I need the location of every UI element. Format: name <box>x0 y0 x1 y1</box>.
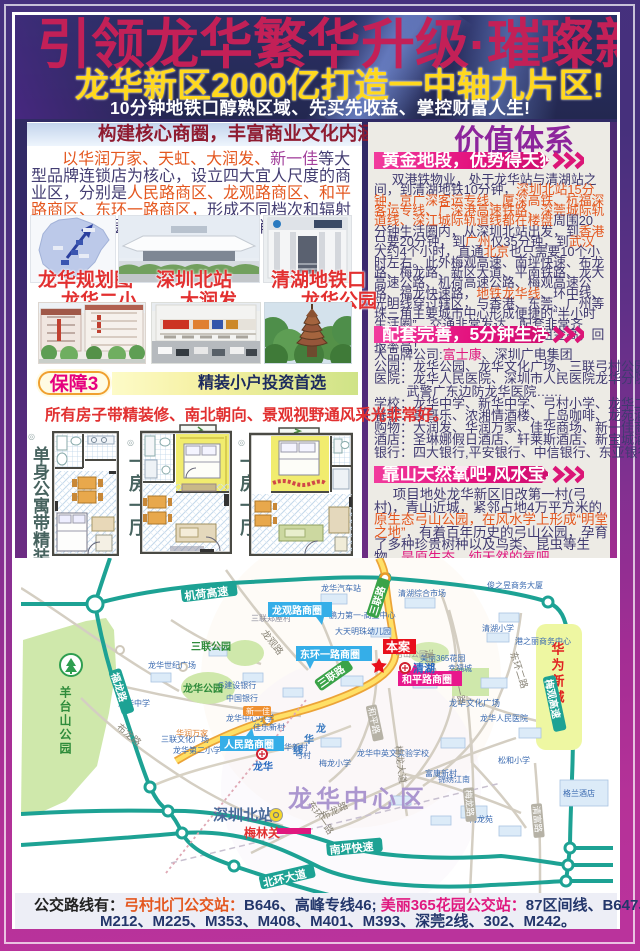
svg-text:松和小学: 松和小学 <box>498 755 530 765</box>
svg-text:梅林关: 梅林关 <box>244 825 280 840</box>
svg-text:人民路商圈: 人民路商圈 <box>224 738 274 751</box>
svg-text:龙观路商圈: 龙观路商圈 <box>271 604 322 617</box>
svg-text:龙华第二小学: 龙华第二小学 <box>173 745 221 755</box>
svg-text:龙华世纪广场: 龙华世纪广场 <box>148 660 196 670</box>
svg-text:东环二路: 东环二路 <box>507 650 530 690</box>
svg-text:线: 线 <box>293 744 303 757</box>
svg-text:龙华公园: 龙华公园 <box>182 682 223 695</box>
svg-text:龙: 龙 <box>315 722 326 735</box>
svg-text:羊台山公园: 羊台山公园 <box>58 685 72 756</box>
svg-text:新一佳: 新一佳 <box>246 706 270 716</box>
svg-text:华: 华 <box>304 733 314 746</box>
svg-text:东环一路商圈: 东环一路商圈 <box>300 648 360 661</box>
svg-text:中国银行: 中国银行 <box>226 693 258 703</box>
svg-text:本案: 本案 <box>386 639 411 654</box>
svg-text:清湖综合市场: 清湖综合市场 <box>398 588 446 598</box>
svg-text:华润万家: 华润万家 <box>176 728 208 738</box>
svg-text:龙华人民医院: 龙华人民医院 <box>480 713 528 723</box>
svg-text:龙华汽车站: 龙华汽车站 <box>321 583 361 593</box>
svg-text:梅龙小学: 梅龙小学 <box>319 758 351 768</box>
svg-text:龙华中心区: 龙华中心区 <box>288 785 428 813</box>
svg-text:俊之昱商务大厦: 俊之昱商务大厦 <box>487 580 543 590</box>
svg-text:锦绣江南: 锦绣江南 <box>438 774 470 784</box>
svg-text:鹏力第一-商业中心: 鹏力第一-商业中心 <box>329 610 396 620</box>
svg-text:深圳北站: 深圳北站 <box>213 806 273 824</box>
svg-text:龙华: 龙华 <box>252 760 273 773</box>
svg-text:G建设银行: G建设银行 <box>218 680 256 690</box>
svg-text:格兰酒店: 格兰酒店 <box>563 788 595 798</box>
svg-text:清湖: 清湖 <box>413 661 435 675</box>
svg-text:佳乐新村: 佳乐新村 <box>253 722 285 732</box>
svg-text:大天明珠幼儿园: 大天明珠幼儿园 <box>335 626 391 636</box>
svg-text:三联公园: 三联公园 <box>191 640 231 653</box>
svg-text:清湖小学: 清湖小学 <box>482 623 514 633</box>
